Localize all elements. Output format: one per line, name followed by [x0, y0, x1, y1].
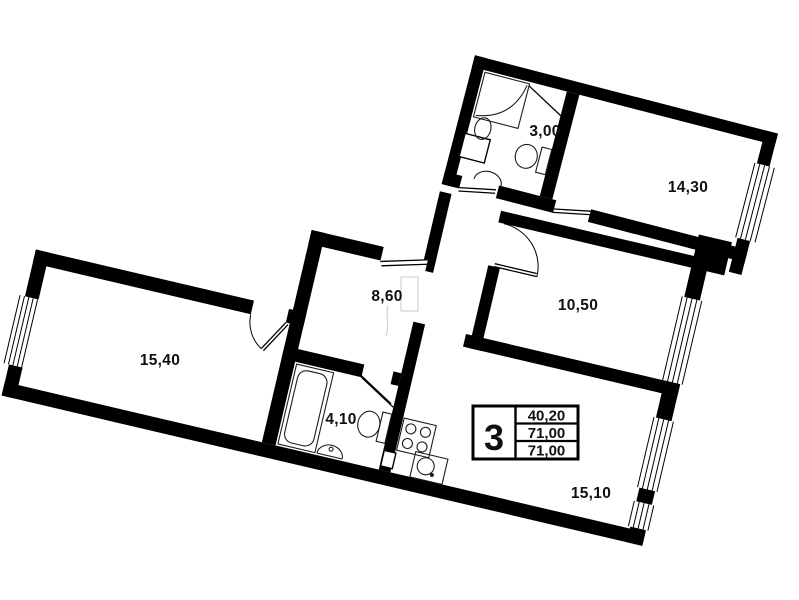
- window-room1050-right: [663, 296, 702, 384]
- window-kitchen-right-2: [628, 501, 653, 531]
- door-livingroom: [243, 314, 288, 354]
- door-shower-room: [458, 181, 495, 200]
- window-kitchen-right-1: [638, 417, 674, 492]
- window-livingroom-left: [4, 295, 38, 367]
- room-area-label-shower-room: 3,00: [529, 123, 560, 140]
- door-entrance: [379, 249, 432, 277]
- wall-livingroom-top: [33, 250, 254, 315]
- walls: [2, 88, 732, 550]
- wall-upper-bottom-a: [442, 171, 463, 188]
- wall-neck-left: [424, 191, 452, 262]
- wall-shower-bedroom-divider: [540, 91, 580, 199]
- wall-upper-left: [442, 55, 487, 187]
- wall-1050-1510-divider: [463, 334, 680, 397]
- room-area-label-room-left: 15,40: [140, 352, 180, 369]
- toilet-shower-room: [512, 141, 551, 175]
- shower-screen: [524, 86, 568, 117]
- window-bedroom-right: [736, 163, 775, 243]
- floor-plan-svg: 3,00 14,30 8,60 10,50 15,40 4,10 15,10 3…: [0, 0, 799, 600]
- vent-shaft-kitchen: [381, 450, 396, 468]
- room-area-label-room-middle: 10,50: [558, 297, 598, 314]
- room-area-label-kitchen-living: 15,10: [571, 485, 611, 502]
- stamp-living-area: 40,20: [528, 408, 566, 425]
- room-area-label-bedroom: 14,30: [668, 179, 708, 196]
- stamp-rooms-count: 3: [484, 417, 504, 458]
- stamp-total-area: 71,00: [528, 425, 566, 442]
- stamp-total-with-summer: 71,00: [528, 443, 566, 460]
- room-area-label-bathroom: 4,10: [325, 411, 356, 428]
- toilet: [355, 407, 392, 443]
- sink-shower-room: [474, 168, 504, 186]
- floor-plan-image: 3,00 14,30 8,60 10,50 15,40 4,10 15,10 3…: [0, 0, 799, 600]
- door-bedroom: [553, 202, 590, 221]
- apartment-stamp: 3 40,20 71,00 71,00: [473, 406, 578, 460]
- room-area-label-hallway: 8,60: [371, 288, 402, 305]
- floor-plan-geometry: [0, 0, 784, 556]
- shower-tray: [473, 72, 529, 128]
